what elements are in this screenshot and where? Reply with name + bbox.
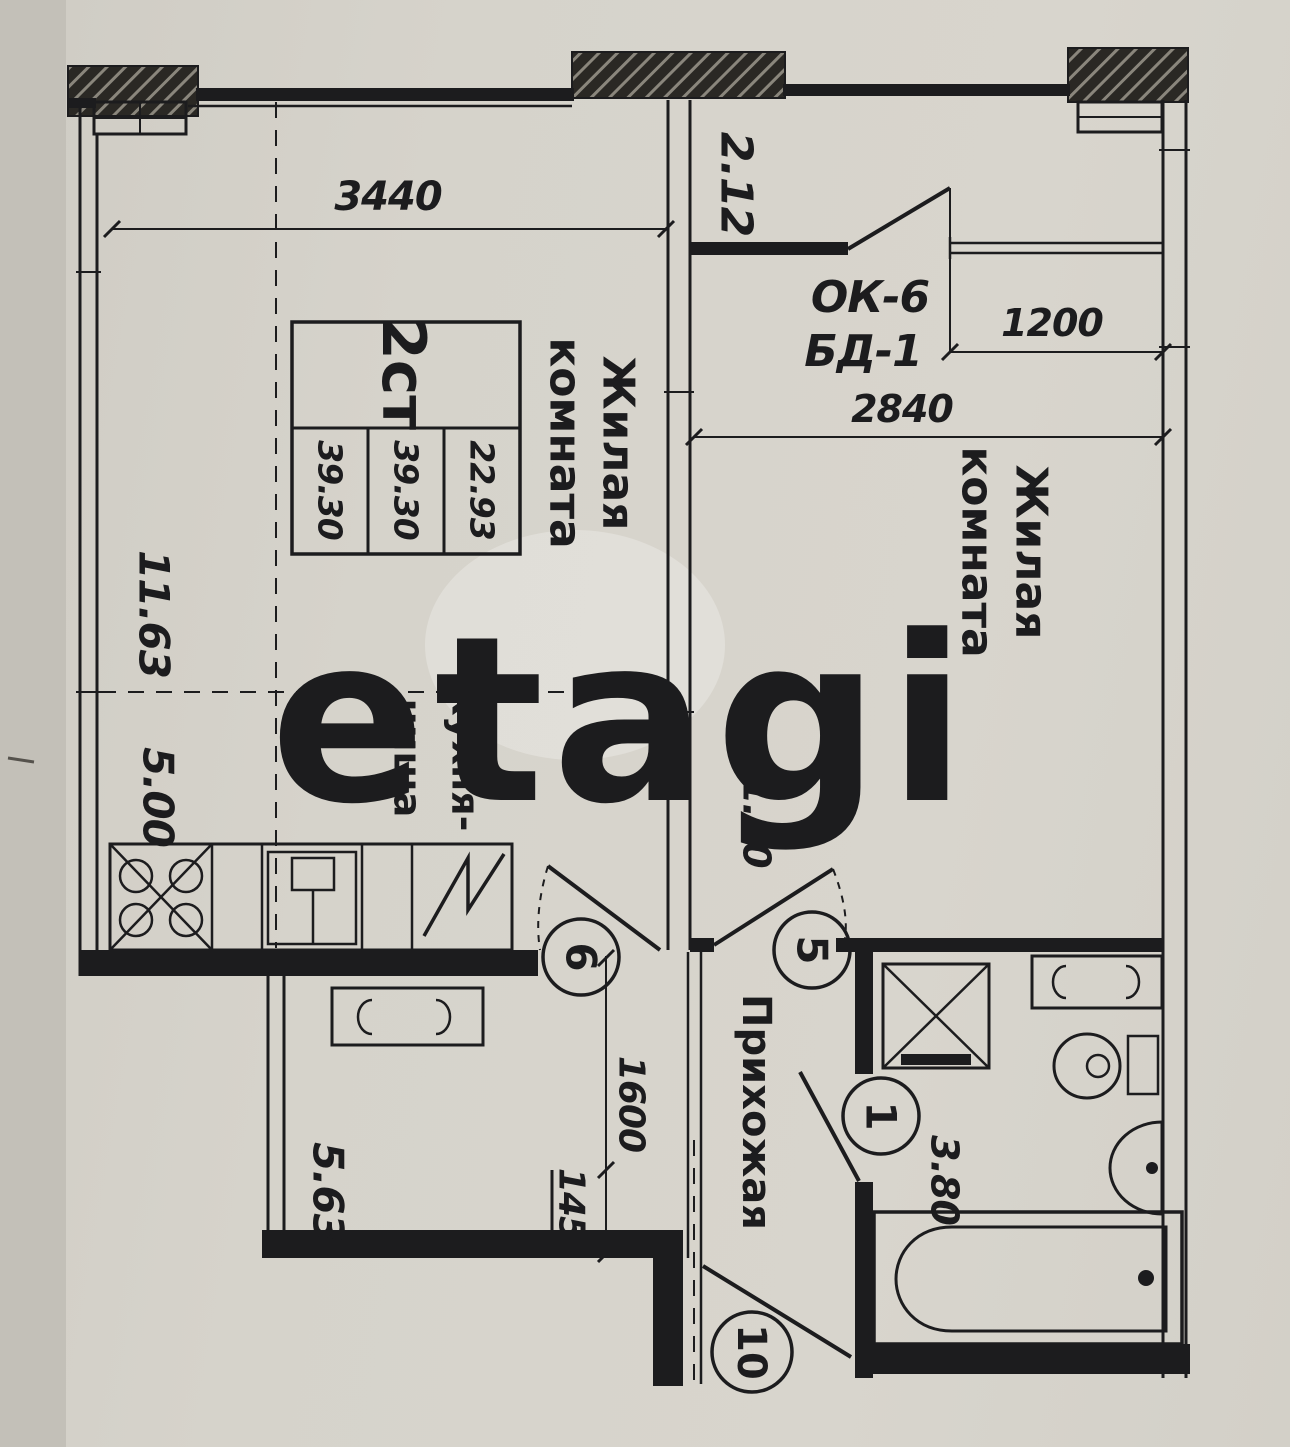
floor-plan-drawing: 3440 1200 2840 ОК-6 БД-1 2ст 39.30 39.30…: [0, 0, 1290, 1447]
stamp-living-area: 22.93: [462, 440, 501, 539]
balcony-door-code-bd1: БД-1: [804, 326, 922, 377]
storage-room: 5.63: [262, 976, 683, 1386]
stamp-total-area: 39.30: [386, 440, 425, 539]
stamp-total-area-alt: 39.30: [310, 440, 349, 539]
window-top-right: [1078, 102, 1162, 132]
kitchen-counter: [110, 844, 512, 950]
dim-1600: 1600: [610, 1056, 651, 1152]
door-number-5: 5: [787, 935, 836, 964]
dimension-2840: 2840: [686, 387, 1171, 445]
area-balcony: 2.12: [711, 132, 762, 237]
stamp-type: 2ст: [368, 318, 438, 430]
svg-text:Жилая: Жилая: [593, 356, 644, 531]
dim-145: 145: [550, 1168, 591, 1240]
dim-1200: 1200: [1001, 301, 1103, 345]
washing-machine-icon: [883, 964, 989, 1068]
dim-3440: 3440: [334, 174, 441, 220]
room-label-hallway: Прихожая: [733, 994, 779, 1230]
door-swing-5: 5: [714, 869, 850, 988]
svg-text:комната: комната: [540, 337, 591, 548]
scanned-floor-plan: 3440 1200 2840 ОК-6 БД-1 2ст 39.30 39.30…: [0, 0, 1290, 1447]
area-kitchen: 5.00: [133, 747, 182, 847]
dimension-1200: 1200: [942, 301, 1171, 360]
paper-edge-shadow: [0, 0, 66, 1447]
area-hall-563: 5.63: [303, 1142, 352, 1242]
stove-icon: [110, 844, 212, 950]
bath-shelf-icon: [1032, 956, 1162, 1008]
room-label-living-1: Жилая комната: [540, 337, 644, 548]
dimension-1600-145: 1600 145: [550, 950, 651, 1262]
window-code-ok6: ОК-6: [811, 272, 930, 323]
balcony-door-leaf: [848, 188, 950, 249]
wardrobe-icon: [332, 988, 483, 1045]
door-number-6: 6: [556, 942, 605, 971]
apartment-stamp-table: 2ст 39.30 39.30 22.93: [292, 318, 520, 554]
bathroom-top-wall: [836, 938, 1163, 952]
door-number-1: 1: [856, 1101, 905, 1130]
door-number-10: 10: [728, 1324, 774, 1380]
toilet-icon: [1054, 1034, 1158, 1098]
door-swing-6: 6: [538, 866, 660, 995]
bathroom-walls: [855, 944, 873, 1378]
dim-2840: 2840: [851, 387, 953, 431]
kitchen-bottom-wall: [80, 950, 538, 976]
svg-text:Жилая: Жилая: [1006, 465, 1057, 640]
door-swing-10: 10: [703, 1266, 851, 1392]
room2-wall-stub: [690, 938, 714, 952]
bathtub-icon: [856, 1212, 1190, 1374]
watermark-etagi: etagi: [270, 588, 975, 855]
fridge-icon: [424, 854, 504, 936]
door-swing-1: 1: [800, 1072, 919, 1181]
area-living-1: 11.63: [129, 550, 178, 678]
kitchen-sink-icon: [268, 852, 356, 944]
wash-basin-icon: [1110, 1122, 1162, 1214]
dimension-3440: 3440: [104, 174, 674, 237]
